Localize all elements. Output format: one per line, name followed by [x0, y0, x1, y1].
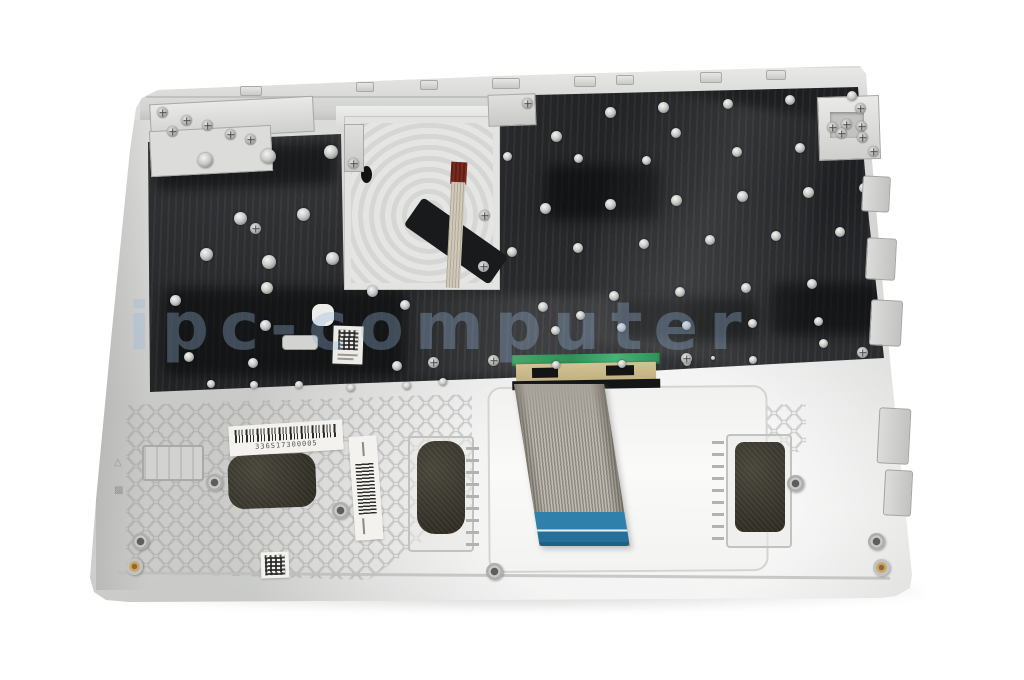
keyboard-rivet: [803, 187, 814, 198]
keyboard-rivet: [771, 231, 781, 241]
phillips-screw: [479, 210, 490, 221]
phillips-screw: [855, 103, 866, 114]
right-edge-step: [861, 175, 891, 212]
keyboard-rivet: [250, 381, 258, 389]
phillips-screw: [250, 223, 261, 234]
chassis-top-tab: [240, 86, 262, 96]
keyboard-rivet: [234, 212, 247, 225]
keyboard-rivet: [540, 203, 551, 214]
screw-boss: [132, 533, 149, 550]
keyboard-rivet: [262, 255, 276, 269]
phillips-screw: [167, 126, 178, 137]
phillips-screw: [522, 98, 533, 109]
chassis-top-tab: [700, 72, 722, 83]
keyboard-rivet: [605, 199, 616, 210]
right-edge-step: [877, 407, 912, 465]
screw-boss: [126, 558, 143, 575]
chassis-top-tab: [492, 78, 520, 89]
phillips-screw: [478, 261, 489, 272]
keyboard-rivet: [737, 191, 748, 202]
phillips-screw: [348, 158, 359, 169]
keyboard-rivet: [642, 156, 651, 165]
phillips-screw: [157, 107, 168, 118]
keyboard-rivet: [403, 382, 411, 390]
phillips-screw: [202, 120, 213, 131]
chassis-top-tab: [766, 70, 786, 80]
screw-boss: [486, 563, 503, 580]
keyboard-rivet: [207, 380, 215, 388]
keyboard-rivet: [785, 95, 795, 105]
keyboard-rivet: [439, 378, 447, 386]
screw-boss: [787, 475, 804, 492]
phillips-screw: [857, 132, 868, 143]
keyboard-rivet: [326, 252, 339, 265]
keyboard-rivet: [297, 208, 310, 221]
chassis-top-tab: [616, 75, 634, 85]
keyboard-rivet: [639, 239, 649, 249]
right-edge-step: [883, 469, 913, 516]
keyboard-rivet: [705, 235, 715, 245]
screw-boss: [868, 533, 885, 550]
keyboard-rivet: [835, 227, 845, 237]
watermark-text: ipc-computer: [128, 288, 928, 365]
keyboard-rivet: [573, 243, 583, 253]
keyboard-rivet: [847, 91, 857, 101]
keyboard-rivet: [347, 384, 355, 392]
screw-boss: [332, 502, 349, 519]
screw-boss: [873, 559, 890, 576]
keyboard-rivet: [605, 107, 616, 118]
phillips-screw: [836, 128, 847, 139]
keyboard-rivet: [507, 247, 517, 257]
keyboard-rivet: [503, 152, 512, 161]
keyboard-rivet: [198, 153, 213, 168]
right-edge-step: [865, 237, 897, 281]
keyboard-rivet: [671, 128, 681, 138]
keyboard-rivet: [671, 195, 682, 206]
keyboard-rivet: [723, 99, 733, 109]
phillips-screw: [868, 146, 879, 157]
keyboard-rivet: [658, 102, 669, 113]
keyboard-rivet: [732, 147, 742, 157]
phillips-screw: [181, 115, 192, 126]
keyboard-rivet: [261, 149, 276, 164]
phillips-screw: [245, 134, 256, 145]
chassis-top-tab: [356, 82, 374, 92]
keyboard-rivet: [551, 131, 562, 142]
chassis-top-tab: [574, 76, 596, 87]
keyboard-rivet: [574, 154, 583, 163]
keyboard-rivet: [200, 248, 213, 261]
screw-boss: [206, 474, 223, 491]
product-photo: 336S17300005 △ ▩: [0, 0, 1024, 680]
phillips-screw: [225, 129, 236, 140]
keyboard-rivet: [295, 381, 303, 389]
keyboard-rivet: [324, 145, 338, 159]
chassis-top-tab: [420, 80, 438, 90]
keyboard-rivet: [795, 143, 805, 153]
phillips-screw: [856, 121, 867, 132]
